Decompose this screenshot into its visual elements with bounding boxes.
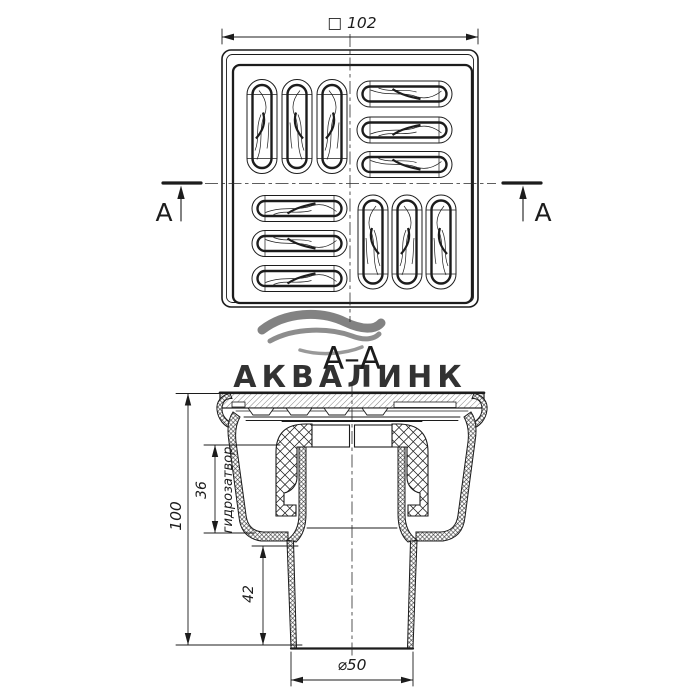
section-cut-marker-right: А: [503, 183, 552, 227]
grate-slot: [358, 195, 388, 289]
outlet-pipe-wall-right: [408, 541, 418, 648]
grate-plate-slot-left: [232, 402, 245, 407]
grate-slot: [252, 266, 347, 292]
grate-slot: [282, 80, 312, 174]
section-title: А–А: [323, 341, 381, 377]
dim-seal-height-label: 36: [194, 481, 210, 499]
dim-outlet-length-label: 42: [241, 585, 257, 603]
bell-left: [276, 424, 312, 516]
dim-outlet-diameter-label: ⌀50: [337, 656, 366, 674]
seal-name-label: гидрозатвор: [221, 447, 236, 534]
grate-plate-slot-right: [394, 402, 456, 408]
grate-slot: [392, 195, 422, 289]
section-view: [217, 384, 487, 660]
outlet-pipe-wall-left: [287, 541, 297, 648]
grate-slot: [426, 195, 456, 289]
grate-plate-slots: [248, 408, 388, 415]
section-arrow-left: [177, 186, 184, 200]
grate-slot: [252, 196, 347, 222]
grate-plate-slot: [324, 408, 350, 415]
dim-overall-height-label: 100: [167, 501, 185, 531]
funnel-top-left-half: [312, 425, 350, 447]
section-cut-marker-left: А: [155, 183, 201, 227]
section-marker-right-label: А: [534, 198, 551, 227]
grate-slots: [247, 80, 456, 292]
grate-slot: [357, 152, 452, 178]
funnel-top-right-half: [355, 425, 393, 447]
section-marker-left-label: А: [155, 198, 172, 227]
drain-technical-drawing: □ 102 А А АКВАЛИНК А–А: [0, 0, 700, 700]
grate-plate-slot: [286, 408, 312, 415]
bell-right: [392, 424, 428, 516]
top-view: [205, 34, 496, 322]
section-arrow-right: [519, 186, 526, 200]
grate-slot: [317, 80, 347, 174]
grate-plate-slot: [248, 408, 274, 415]
grate-slot: [252, 231, 347, 257]
grate-slot: [247, 80, 277, 174]
dim-top-width-label: □ 102: [327, 14, 376, 32]
dim-outlet-diameter: ⌀50: [291, 652, 413, 686]
dim-arrow-left: [222, 34, 234, 41]
dim-arrow-right: [466, 34, 478, 41]
grate-slot: [357, 81, 452, 107]
grate-slot: [357, 117, 452, 143]
grate-plate-slot: [362, 408, 388, 415]
